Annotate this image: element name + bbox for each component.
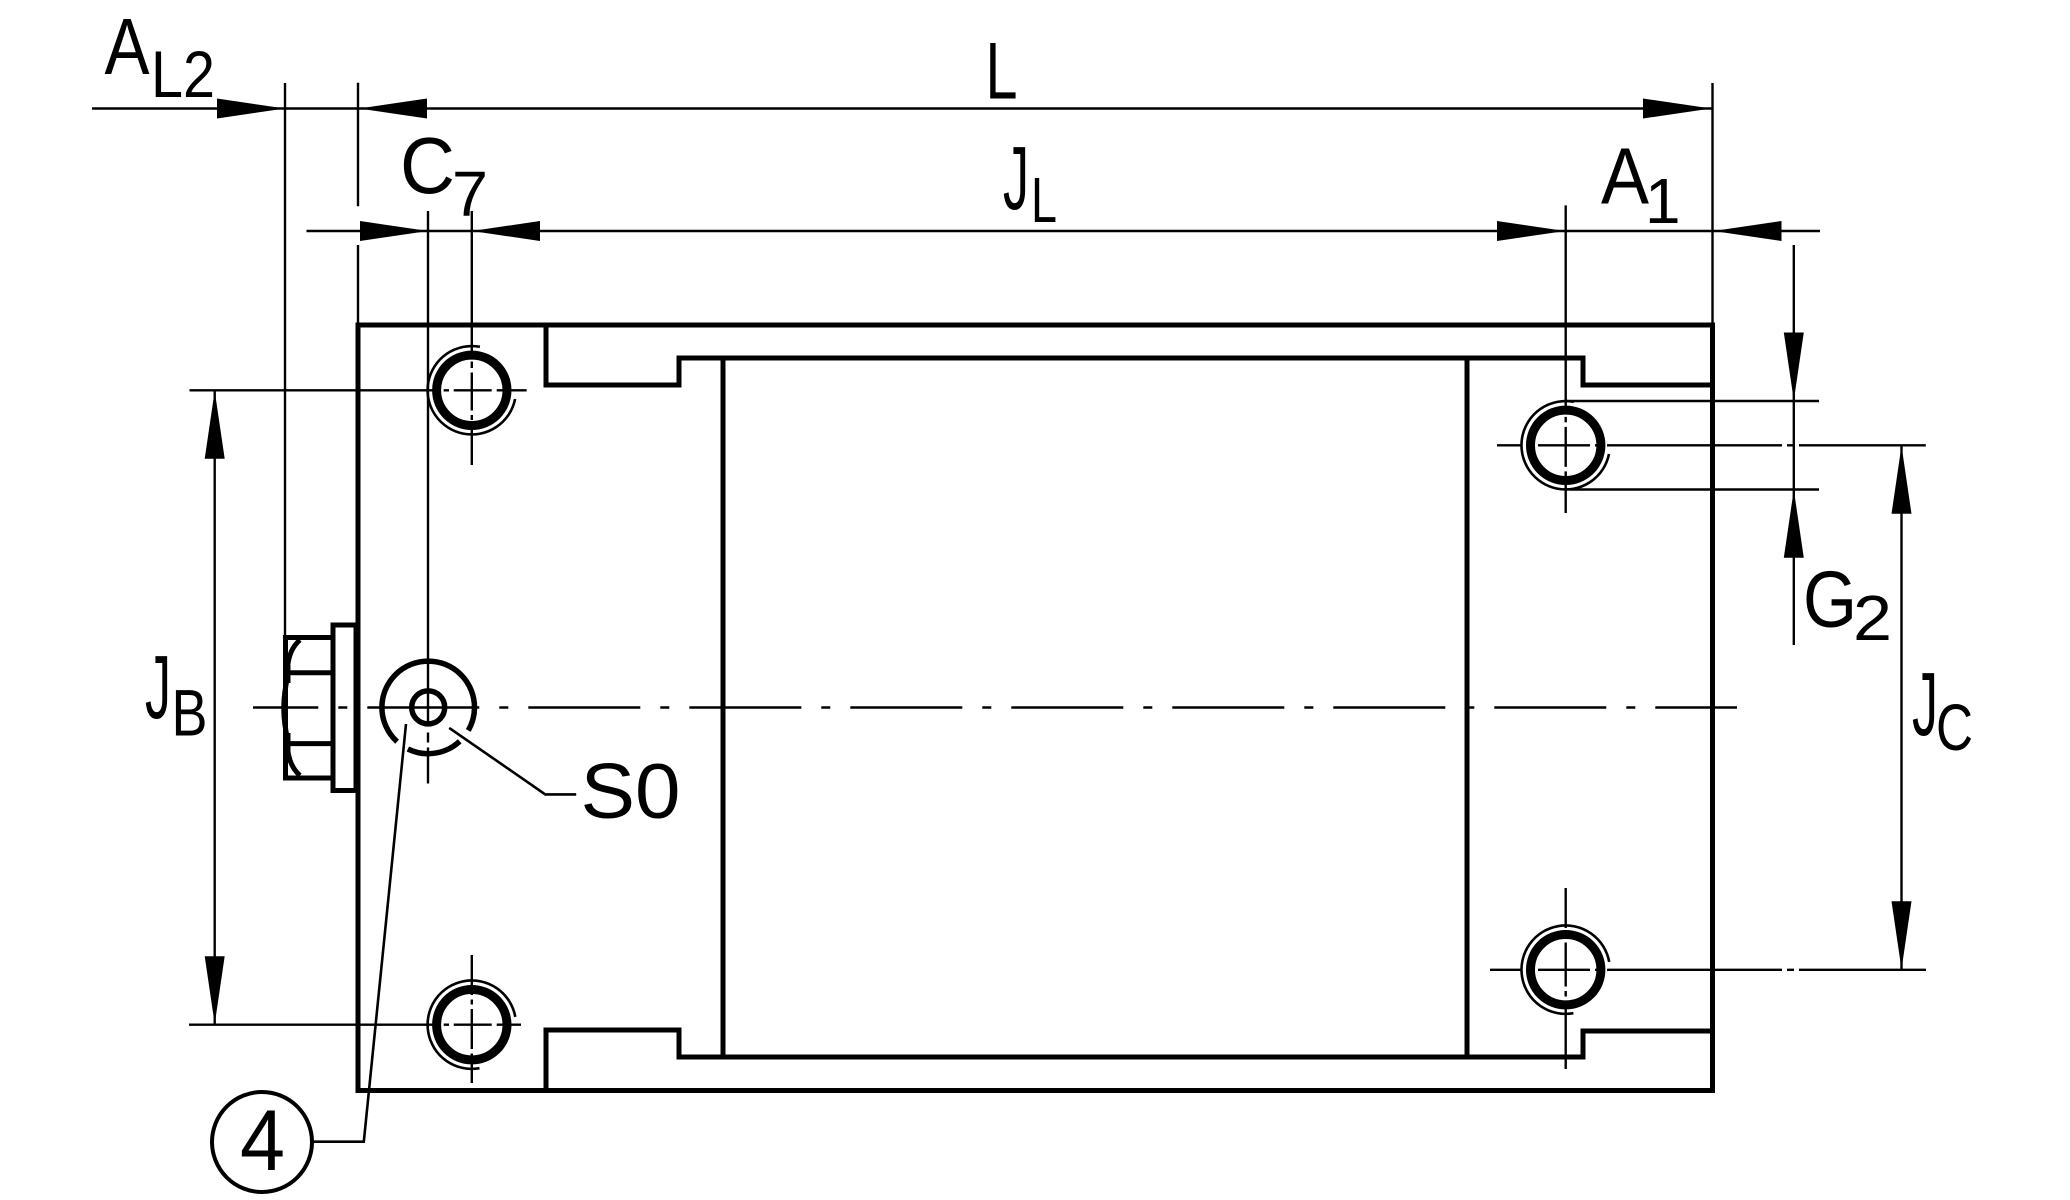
svg-text:L: L: [986, 27, 1018, 117]
svg-text:G: G: [1803, 555, 1857, 644]
svg-text:L: L: [1031, 164, 1057, 236]
svg-text:2: 2: [1853, 582, 1892, 654]
svg-text:B: B: [172, 676, 208, 750]
svg-text:J: J: [145, 638, 171, 738]
svg-text:7: 7: [452, 158, 488, 230]
svg-text:J: J: [1912, 655, 1938, 755]
svg-text:S0: S0: [581, 747, 681, 835]
svg-text:A: A: [1601, 132, 1650, 221]
svg-text:C: C: [1936, 690, 1973, 764]
svg-text:L2: L2: [151, 37, 215, 111]
svg-text:4: 4: [240, 1093, 285, 1189]
svg-text:C: C: [400, 121, 455, 210]
svg-text:J: J: [1003, 129, 1029, 229]
svg-text:A: A: [105, 2, 151, 91]
svg-text:1: 1: [1645, 165, 1681, 237]
